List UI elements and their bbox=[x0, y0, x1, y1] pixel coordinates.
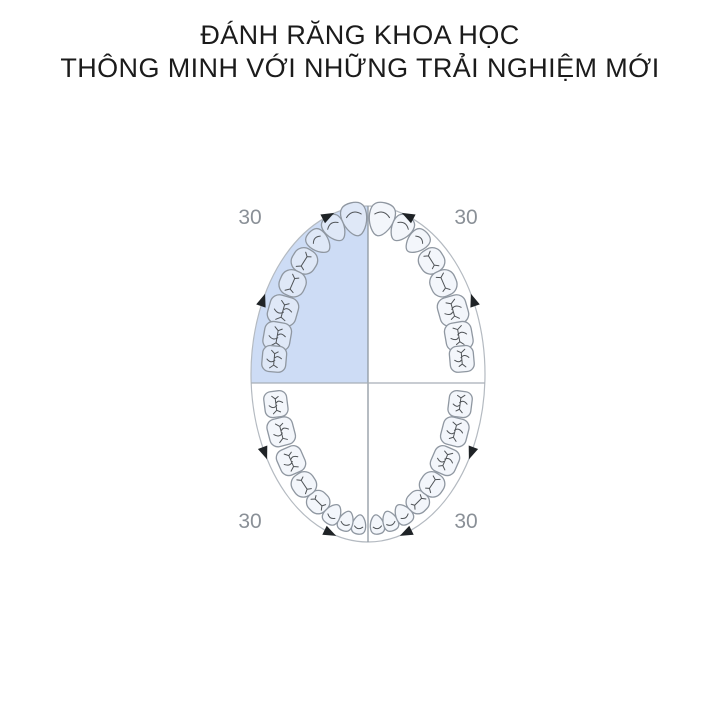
tooth-molar bbox=[447, 390, 473, 419]
quadrant-time-label-lower-right: 30 bbox=[454, 510, 477, 533]
tooth-molar bbox=[449, 345, 475, 373]
brushing-direction-arrow-icon bbox=[258, 446, 267, 460]
quadrant-time-label-upper-left: 30 bbox=[238, 206, 261, 229]
page: ĐÁNH RĂNG KHOA HỌC THÔNG MINH VỚI NHỮNG … bbox=[0, 0, 720, 720]
brushing-quadrant-diagram: 30303030 bbox=[0, 0, 720, 720]
brushing-direction-arrow-icon bbox=[256, 294, 265, 308]
quadrant-time-label-lower-left: 30 bbox=[238, 510, 261, 533]
brushing-direction-arrow-icon bbox=[400, 526, 414, 536]
tooth-molar bbox=[263, 390, 289, 419]
brushing-direction-arrow-icon bbox=[322, 526, 336, 536]
brushing-direction-arrow-icon bbox=[469, 446, 478, 460]
tooth-molar bbox=[439, 415, 471, 449]
brushing-direction-arrow-icon bbox=[470, 294, 479, 308]
quadrant-time-label-upper-right: 30 bbox=[454, 206, 477, 229]
tooth-molar bbox=[261, 345, 287, 373]
tooth-molar bbox=[265, 415, 297, 449]
